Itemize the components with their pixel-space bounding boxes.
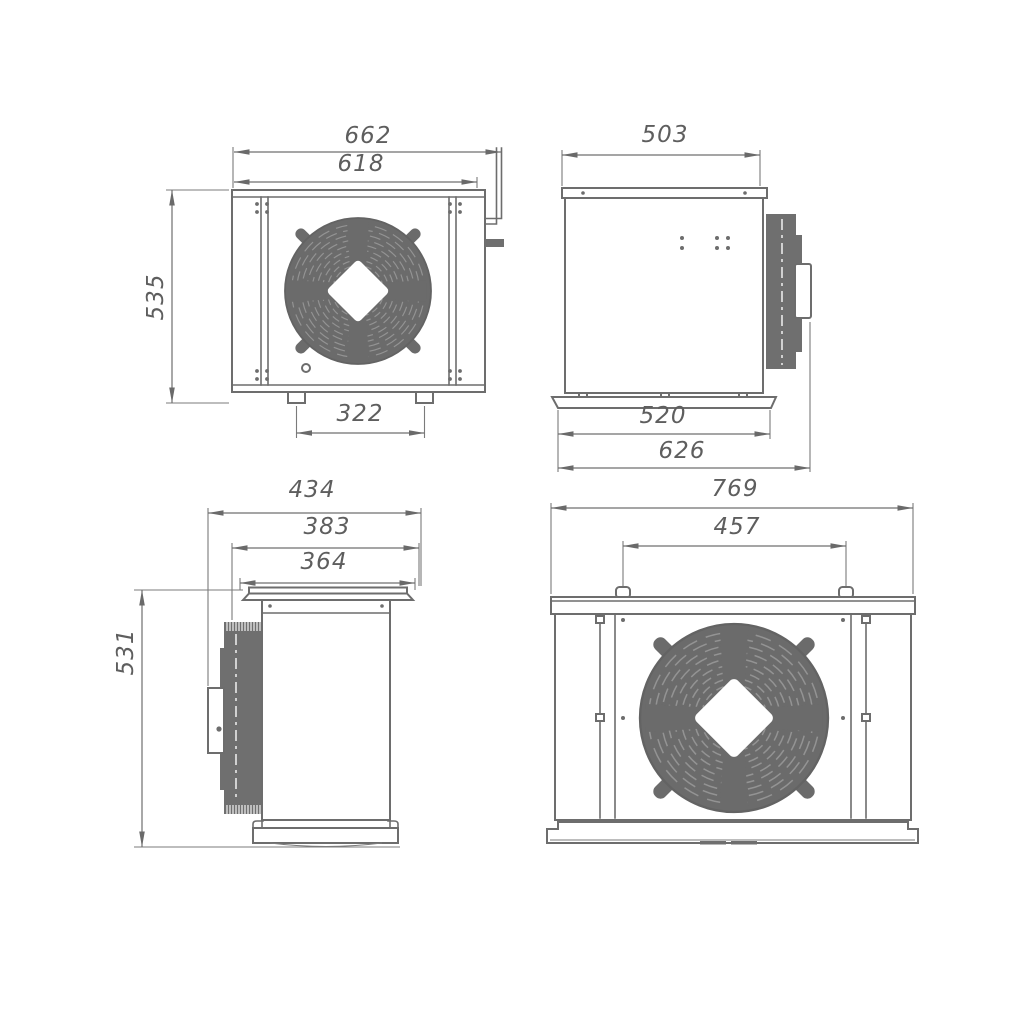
dim-side-right-top-depth: 503 [642, 122, 689, 148]
foot-right [416, 392, 433, 403]
rear-view-body [547, 587, 918, 845]
dim-side-left-height: 531 [113, 629, 139, 676]
dim-front-overall-width: 662 [345, 123, 392, 149]
base-pan [547, 822, 918, 845]
base-pan [253, 820, 398, 847]
technical-drawing: 662 618 535 322 [0, 0, 1024, 1024]
dim-side-left-overall-depth: 434 [289, 477, 336, 503]
dim-side-right-base-depth: 520 [640, 403, 687, 429]
rear-view-dimensions: 769 457 [551, 476, 913, 594]
dim-front-height: 535 [143, 274, 169, 321]
refrigerant-pipes [485, 148, 504, 247]
fan-grille [285, 218, 431, 364]
condenser-coil-fins [220, 622, 262, 814]
foot-left [288, 392, 305, 403]
dim-rear-overall-width: 769 [712, 476, 759, 502]
drain-hole [302, 364, 310, 372]
drawing-canvas: 662 618 535 322 [0, 0, 1024, 1024]
dim-side-left-flange-width: 364 [301, 549, 348, 575]
side-left-body [208, 588, 413, 847]
rear-view: 769 457 [547, 476, 918, 845]
coil-bracket [795, 264, 811, 318]
fan-grille [640, 624, 828, 812]
front-view: 662 618 535 322 [143, 123, 504, 438]
dim-side-right-overall-depth: 626 [659, 438, 706, 464]
dim-side-left-mid-depth: 383 [304, 514, 351, 540]
front-view-body [232, 148, 504, 403]
side-left-view: 434 383 364 531 [113, 477, 421, 847]
side-right-body [552, 188, 811, 408]
dim-front-body-width: 618 [338, 151, 385, 177]
side-right-view: 503 520 626 [552, 122, 811, 472]
dim-front-feet-spacing: 322 [337, 401, 384, 427]
junction-box [208, 688, 224, 753]
dim-rear-hanger-spacing: 457 [714, 514, 761, 540]
